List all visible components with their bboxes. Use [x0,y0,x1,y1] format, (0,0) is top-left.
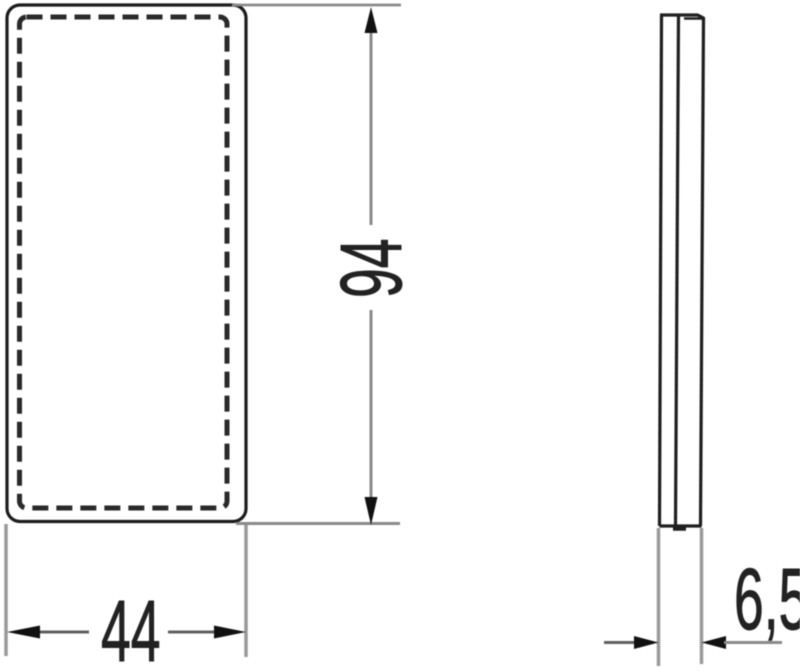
svg-text:44: 44 [101,584,161,672]
svg-text:94: 94 [324,238,420,298]
svg-text:6,5: 6,5 [734,552,800,648]
